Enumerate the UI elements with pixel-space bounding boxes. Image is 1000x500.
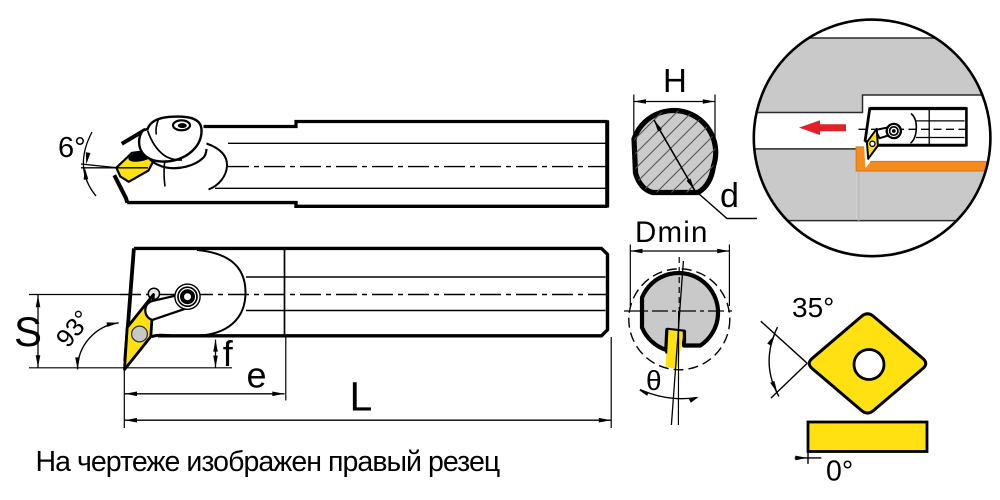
svg-text:На чертеже изображен правый ре: На чертеже изображен правый резец [36, 446, 500, 478]
svg-text:e: e [247, 355, 267, 396]
svg-text:f: f [223, 333, 234, 374]
svg-text:L: L [350, 374, 373, 420]
svg-text:S: S [14, 308, 42, 355]
svg-text:35°: 35° [792, 292, 834, 323]
svg-text:H: H [663, 62, 687, 99]
svg-text:d: d [720, 177, 739, 215]
svg-text:θ: θ [646, 365, 662, 396]
svg-text:6°: 6° [58, 132, 86, 164]
svg-text:Dmin: Dmin [635, 216, 709, 249]
svg-text:0°: 0° [826, 456, 853, 488]
